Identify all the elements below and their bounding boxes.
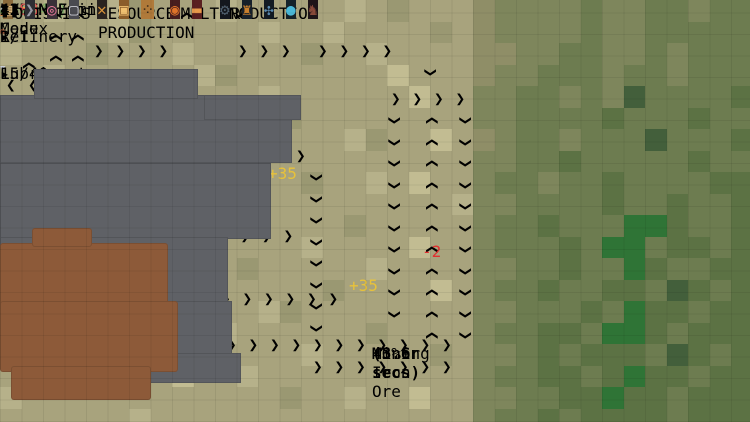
belt-arrow-icon: ❯ [385,309,404,319]
iron-ore-deposit [178,284,191,297]
iron-ore-deposit [114,176,127,189]
belt-arrow-icon: ❯ [385,266,404,276]
belt-arrow-icon: ❯ [307,173,326,183]
iron-ore-deposit [6,131,19,144]
iron-ore-deposit [200,152,213,165]
copper-ore-deposit [30,273,43,286]
iron-ore-deposit [200,262,213,275]
iron-ore-deposit [243,198,256,211]
copper-ore-deposit [73,251,86,264]
iron-ore-deposit [157,241,170,254]
belt-arrow-icon: ❯ [94,41,104,60]
iron-ore-deposit [200,327,213,340]
belt-arrow-icon: ❯ [385,137,404,147]
iron-ore-deposit [71,131,84,144]
belt-arrow-icon: ❯ [249,335,259,354]
belt-arrow-icon: ❯ [421,159,440,169]
iron-ore-deposit [114,219,127,232]
belt-arrow-icon: ❯ [456,159,475,169]
belt-arrow-icon: ❯ [313,357,323,376]
well-button[interactable]: ⁘ [141,0,154,19]
copper-ore-deposit [21,372,34,385]
belt-arrow-icon: ❯ [292,335,302,354]
conveyor-belt[interactable]: ❯❯❯❯❯❯❯❯❯❯❯ [456,105,477,353]
belt-arrow-icon: ❯ [385,116,404,126]
belt-arrow-icon: ❯ [307,323,326,333]
iron-ore-deposit [71,219,84,232]
iron-ore-deposit [243,152,256,165]
copper-ore-deposit [107,372,120,385]
belt-arrow-icon: ❯ [284,226,294,245]
copper-ore-deposit [8,273,21,286]
stone-platform [34,69,197,99]
copper-ore-deposit [30,251,43,264]
iron-ore-deposit [92,131,105,144]
belt-arrow-icon: ❯ [67,54,86,64]
factory-button[interactable]: ♜ [242,0,252,19]
copper-ground [0,301,178,372]
panel-expand-button[interactable]: ▸ [0,64,10,83]
iron-ore-deposit [200,284,213,297]
belt-arrow-icon: ❯ [421,288,440,298]
belt-arrow-icon: ❯ [456,288,475,298]
iron-ore-deposit [157,262,170,275]
belt-arrow-icon: ❯ [238,41,248,60]
iron-ore-deposit [114,198,127,211]
copper-ore-deposit [64,372,77,385]
belt-arrow-icon: ❯ [421,68,440,78]
steel-furnace-button[interactable]: ▬ [192,0,202,19]
belt-arrow-icon: ❯ [421,309,440,319]
iron-ore-deposit [135,131,148,144]
belt-arrow-icon: ❯ [116,41,126,60]
iron-ore-deposit [243,131,256,144]
belt-arrow-icon: ❯ [385,223,404,233]
belt-arrow-icon: ❯ [383,41,393,60]
floating-profit-text: +35 [268,164,297,183]
conveyor-belt[interactable]: ❯❯❯❯❯❯❯❯ [307,162,328,354]
conveyor-belt[interactable]: ❯❯❯❯ [312,36,414,57]
iron-ore-deposit [157,152,170,165]
copper-ore-deposit [73,294,86,307]
belt-arrow-icon: ❯ [340,41,350,60]
copper-ore-deposit [30,294,43,307]
belt-arrow-icon: ❯ [307,237,326,247]
belt-arrow-icon: ❯ [335,357,345,376]
iron-ore-deposit [157,219,170,232]
belt-arrow-icon: ❯ [329,289,339,308]
belt-arrow-icon: ❯ [159,41,169,60]
belt-arrow-icon: ❯ [385,159,404,169]
belt-arrow-icon: ❯ [281,41,291,60]
belt-arrow-icon: ❯ [264,289,274,308]
iron-ore-deposit [71,176,84,189]
iron-ore-deposit [71,198,84,211]
lab-button[interactable]: ✣ [264,0,274,19]
belt-arrow-icon: ❯ [45,54,64,64]
iron-ore-deposit [200,219,213,232]
belt-arrow-icon: ❯ [307,280,326,290]
iron-ore-deposit [178,131,191,144]
copper-ground [32,228,92,247]
belt-arrow-icon: ❯ [421,331,440,341]
belt-arrow-icon: ❯ [385,245,404,255]
belt-arrow-icon: ❯ [456,137,475,147]
storage-button[interactable]: ▢ [69,0,79,19]
iron-ore-deposit [28,109,41,122]
sphere-button[interactable]: ● [286,0,296,19]
conveyor-belt[interactable]: ❯❯❯❯❯❯❯❯❯❯ [385,105,406,331]
iron-ore-deposit [178,198,191,211]
belt-arrow-icon: ❯ [318,41,328,60]
iron-ore-deposit [200,176,213,189]
copper-ore-deposit [94,273,107,286]
iron-ore-deposit [200,305,213,318]
iron-ore-deposit [157,109,170,122]
belt-arrow-icon: ❯ [421,137,440,147]
belt-button[interactable]: ❯ [25,0,35,19]
copper-ore-deposit [129,372,142,385]
iron-ore-deposit [135,198,148,211]
assembler-button[interactable]: ⚙ [220,0,230,19]
belt-arrow-icon: ❯ [421,266,440,276]
iron-ore-deposit [49,131,62,144]
copper-ore-deposit [30,331,43,344]
iron-ore-deposit [71,109,84,122]
belt-arrow-icon: ❯ [421,116,440,126]
copper-ore-deposit [73,273,86,286]
panel-expand-button[interactable]: ▸ [0,27,10,46]
floating-profit-text: +35 [349,276,378,295]
belt-arrow-icon: ❯ [260,41,270,60]
iron-ore-deposit [28,131,41,144]
select-tool-button-2[interactable]: ➤ [0,0,10,19]
iron-ore-deposit [178,241,191,254]
belt-arrow-icon: ❯ [456,309,475,319]
copper-ore-deposit [73,331,86,344]
belt-arrow-icon: ❯ [286,289,296,308]
belt-arrow-icon: ❯ [307,302,326,312]
copper-ore-deposit [86,372,99,385]
iron-ore-deposit [243,176,256,189]
belt-arrow-icon: ❯ [421,180,440,190]
iron-ore-deposit [264,131,277,144]
iron-ore-deposit [221,131,234,144]
iron-ore-deposit [71,152,84,165]
copper-ore-deposit [116,294,129,307]
belt-arrow-icon: ❯ [307,259,326,269]
belt-arrow-icon: ❯ [385,180,404,190]
belt-arrow-icon: ❯ [270,335,280,354]
iron-ore-deposit [114,131,127,144]
iron-ore-deposit [200,198,213,211]
iron-ore-deposit [28,152,41,165]
miner-button[interactable]: ✕ [97,0,107,19]
armory-button[interactable]: ♞ [308,0,318,19]
copper-ore-deposit [116,273,129,286]
belt-arrow-icon: ❯ [421,202,440,212]
iron-ore-deposit [92,198,105,211]
iron-ore-deposit [178,327,191,340]
iron-ore-deposit [114,109,127,122]
tooltip-progress: 46% [372,344,401,363]
iron-ore-deposit [200,241,213,254]
belt-arrow-icon: ❯ [456,202,475,212]
belt-arrow-icon: ❯ [137,41,147,60]
copper-ore-deposit [51,273,64,286]
copper-ore-deposit [116,331,129,344]
pump-button[interactable]: ▣ [119,0,129,19]
copper-ore-deposit [116,251,129,264]
belt-arrow-icon: ❯ [385,288,404,298]
game-screen: ❯❯❯❯❯❯❯❯❯❯❯❯❯❯❯❯❯❯❯❯❯❯❯❯❯❯❯❯❯❯❯❯❯❯❯❯❯❯❯❯… [0,0,750,422]
copper-ore-deposit [159,331,172,344]
iron-ore-deposit [200,131,213,144]
belt-arrow-icon: ❯ [307,194,326,204]
iron-ore-deposit [200,109,213,122]
floating-cost-text: -2 [422,242,441,261]
belt-arrow-icon: ❯ [456,223,475,233]
belt-arrow-icon: ❯ [307,216,326,226]
belt-arrow-icon: ❯ [361,41,371,60]
belt-arrow-icon: ❯ [456,331,475,341]
conveyor-belt[interactable]: ❯ [421,57,442,85]
belt-arrow-icon: ❯ [456,245,475,255]
belt-arrow-icon: ❯ [442,357,452,376]
splitter-button[interactable]: ◎ [47,0,57,19]
belt-arrow-icon: ❯ [421,223,440,233]
belt-arrow-icon: ❯ [356,357,366,376]
conveyor-belt[interactable]: ❯❯❯❯❯❯❯❯❯❯❯ [421,105,442,353]
iron-ore-deposit [243,109,256,122]
iron-ore-deposit [157,131,170,144]
furnace-button[interactable]: ◉ [170,0,180,19]
copper-ore-deposit [137,273,150,286]
belt-arrow-icon: ❯ [456,266,475,276]
iron-ore-deposit [157,198,170,211]
iron-ore-deposit [114,152,127,165]
belt-arrow-icon: ❯ [243,289,253,308]
conveyor-belt[interactable]: ❯❯❯ [232,36,312,57]
belt-arrow-icon: ❯ [456,116,475,126]
iron-ore-deposit [49,198,62,211]
iron-ore-deposit [157,176,170,189]
belt-arrow-icon: ❯ [296,146,306,165]
belt-arrow-icon: ❯ [385,202,404,212]
conveyor-belt[interactable]: ❯❯❯❯ [385,84,478,105]
iron-ore-deposit [221,198,234,211]
iron-ore-deposit [243,219,256,232]
belt-arrow-icon: ❯ [456,180,475,190]
copper-ore-deposit [43,372,56,385]
iron-ore-deposit [157,284,170,297]
